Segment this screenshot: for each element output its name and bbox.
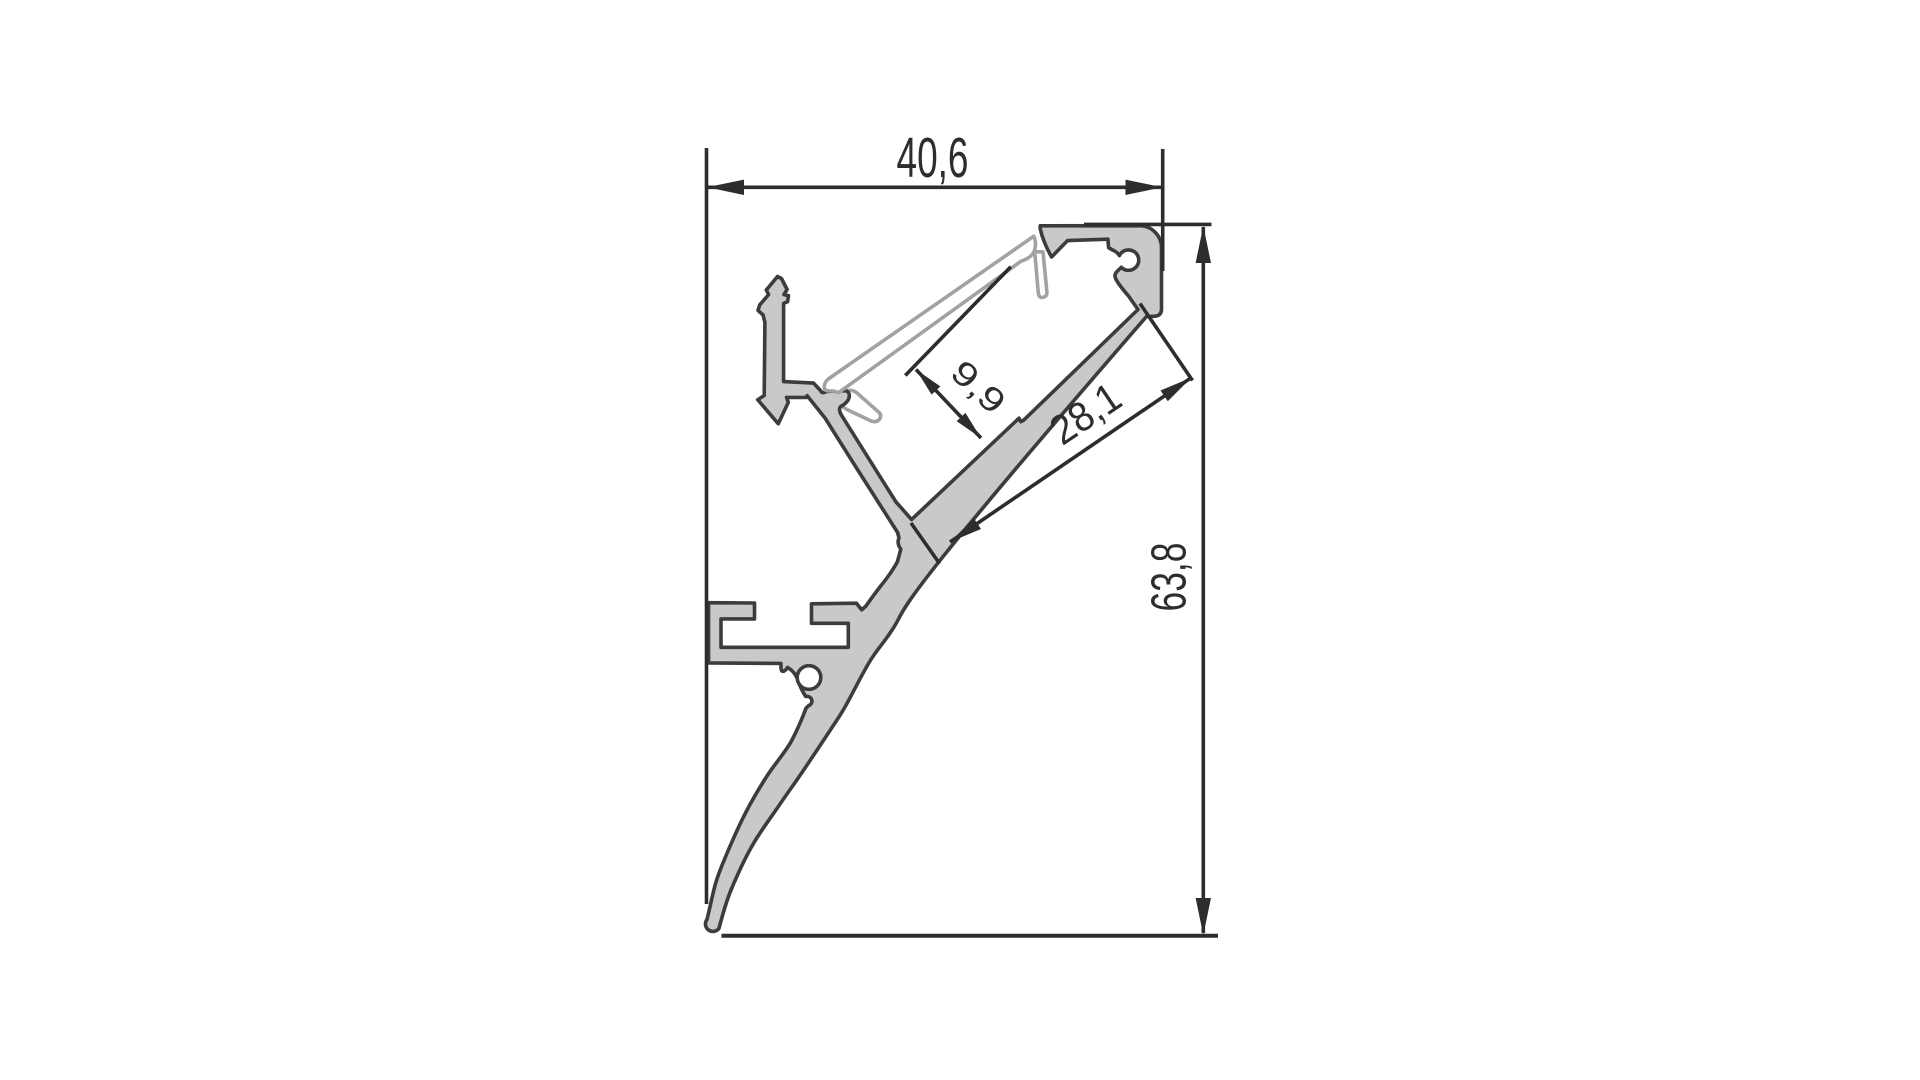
svg-text:40,6: 40,6 (897, 126, 969, 189)
svg-text:63,8: 63,8 (1142, 543, 1197, 612)
